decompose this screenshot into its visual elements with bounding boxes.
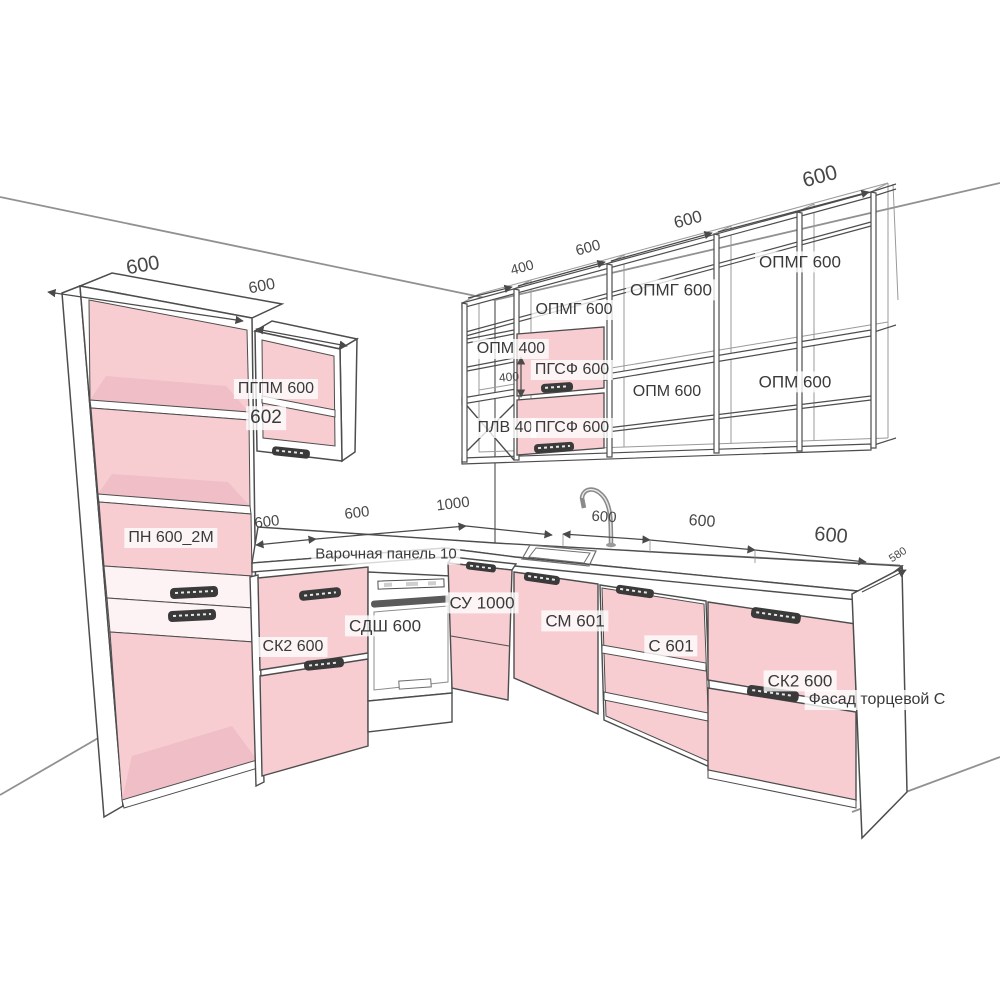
label-opmg-600-1: ОПМГ 600 (755, 251, 845, 272)
label-sdsh-600: СДШ 600 (345, 615, 425, 636)
label-opmg-600-3: ОПМГ 600 (531, 300, 616, 320)
drawing-canvas (0, 0, 1000, 1000)
label-pgpm-600: ПГПМ 600 (234, 379, 318, 399)
dim-base-left-600-b: 600 (342, 503, 373, 523)
label-pgsf-600-upper: ПГСФ 600 (531, 360, 613, 380)
label-su-1000: СУ 1000 (445, 592, 518, 613)
label-opm-400: ОПМ 400 (473, 339, 549, 359)
kitchen-3d-drawing: ОПМГ 600 ОПМГ 600 ОПМГ 600 ОПМ 400 ПГСФ … (0, 0, 1000, 1000)
label-opm-600-right: ОПМ 600 (755, 371, 836, 392)
label-fasad-tortsevoy: Фасад торцевой С (805, 690, 950, 710)
oven-unit-sdsh (368, 572, 452, 732)
dim-base-right-600-a: 600 (686, 512, 718, 532)
label-602: 602 (246, 406, 286, 430)
label-pgsf-600-lower: ПГСФ 600 (531, 418, 613, 438)
base-cabinet-sk2-left (250, 567, 368, 786)
label-plv-40: ПЛВ 40 (474, 418, 537, 438)
label-s-601: С 601 (644, 635, 697, 656)
dim-sink-600: 600 (589, 508, 619, 527)
label-opm-600-mid: ОПМ 600 (629, 382, 705, 402)
base-cabinet-s601 (600, 584, 712, 768)
dim-base-right-600-b: 600 (811, 523, 850, 549)
label-pn-600-2m: ПН 600_2М (124, 528, 217, 548)
base-cabinet-sm (514, 572, 598, 714)
corner-cabinet-su (448, 557, 516, 700)
oven-control-panel (378, 579, 444, 589)
dim-pgsf-400: 400 (496, 369, 521, 385)
label-sk2-600-left: СК2 600 (259, 637, 328, 657)
label-sm-601: СМ 601 (541, 610, 608, 631)
dim-base-left-600-a: 600 (252, 512, 283, 532)
label-sk2-600-right: СК2 600 (764, 670, 837, 691)
label-opmg-600-2: ОПМГ 600 (626, 279, 716, 300)
label-hob-panel: Варочная панель 10 (311, 546, 460, 565)
